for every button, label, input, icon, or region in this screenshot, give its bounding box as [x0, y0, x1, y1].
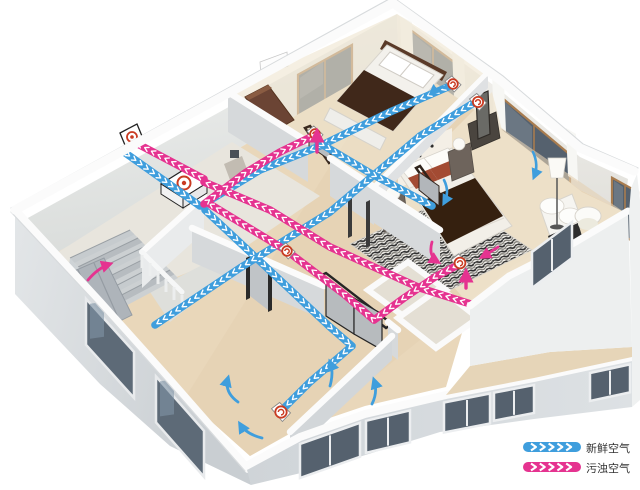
svg-text:新鲜空气: 新鲜空气 [586, 441, 630, 455]
svg-text:污浊空气: 污浊空气 [586, 461, 630, 475]
